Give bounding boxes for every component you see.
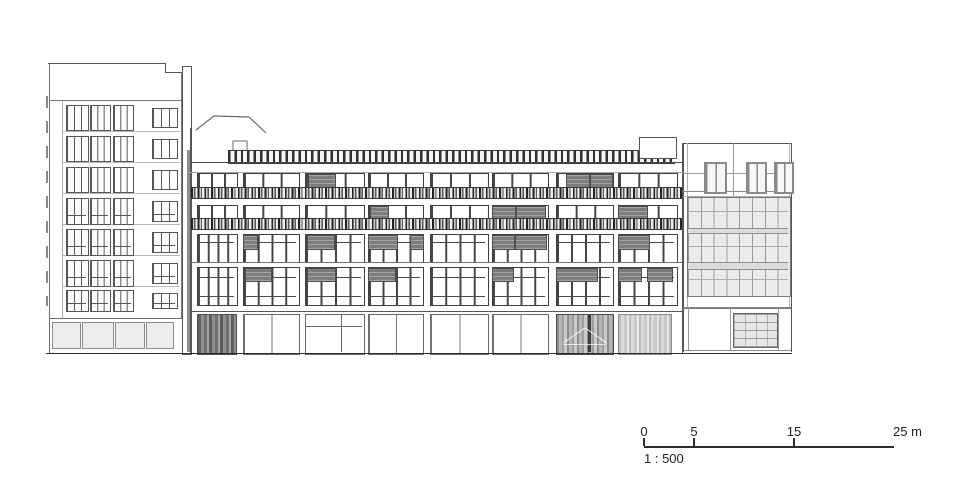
left-storefront-window <box>82 322 114 349</box>
left-window <box>113 198 134 225</box>
ground-storefront-glass <box>305 314 365 355</box>
center-window-transom <box>557 296 610 297</box>
center-dark-panel <box>618 268 642 282</box>
left-sill-line <box>62 131 180 132</box>
center-roof-line <box>190 162 683 163</box>
ground-shutter-light <box>618 314 672 355</box>
right-attic-window <box>774 162 794 194</box>
center-window-bay <box>430 234 489 263</box>
center-window-transom <box>619 296 674 297</box>
left-window <box>152 293 178 309</box>
left-window-transom <box>91 303 108 304</box>
curtain-spandrel-band <box>688 262 788 270</box>
left-window-transom <box>114 215 131 216</box>
center-window-transom <box>431 296 485 297</box>
center-dark-panel <box>307 235 335 250</box>
left-window <box>66 290 89 312</box>
ground-storefront-glass <box>430 314 489 355</box>
left-window <box>113 167 134 193</box>
center-window-transom <box>198 296 234 297</box>
left-window <box>90 105 111 131</box>
left-cornice-line <box>50 100 182 101</box>
center-window-bay <box>430 267 489 306</box>
left-window-transom <box>114 303 131 304</box>
left-window <box>90 136 111 162</box>
left-window <box>90 198 111 225</box>
roof-stair-box <box>639 137 677 159</box>
left-window <box>113 260 134 287</box>
left-window <box>113 290 134 312</box>
center-ground-floor-line <box>190 311 683 312</box>
left-window-transom <box>67 246 86 247</box>
left-window-transom <box>67 303 86 304</box>
left-storefront-window <box>52 322 81 349</box>
left-window-transom <box>91 246 108 247</box>
ground-storefront-glass <box>243 314 300 355</box>
center-dark-panel <box>647 268 673 282</box>
left-window-transom <box>153 303 175 304</box>
right-attic-window <box>746 162 767 194</box>
left-window <box>152 108 178 128</box>
left-sill-line <box>62 162 180 163</box>
center-window-bay <box>197 234 238 263</box>
curtain-spandrel-band <box>688 228 788 234</box>
left-storefront-line <box>50 318 182 319</box>
left-window-transom <box>153 276 175 277</box>
center-dark-panel <box>307 268 336 282</box>
right-sectional-door <box>733 313 778 348</box>
center-window-transom <box>431 277 485 278</box>
center-dark-panel <box>515 235 547 250</box>
left-window <box>66 229 89 256</box>
curtain-transom-line <box>688 246 788 247</box>
center-window-transom <box>244 296 296 297</box>
left-storefront-window <box>115 322 145 349</box>
left-window <box>152 263 178 284</box>
left-window <box>152 201 178 222</box>
left-window <box>66 136 89 162</box>
center-dark-panel <box>492 235 515 250</box>
center-window-transom <box>557 242 610 243</box>
center-dark-panel <box>410 235 424 250</box>
right-attic-window <box>704 162 727 194</box>
ground-storefront-glass <box>368 314 424 355</box>
left-window <box>66 167 89 193</box>
center-window-bay <box>197 267 238 306</box>
left-window-transom <box>114 246 131 247</box>
curtain-transom-line <box>688 211 788 212</box>
gate-base-line <box>563 344 605 345</box>
center-window-transom <box>306 296 361 297</box>
left-window <box>113 105 134 131</box>
left-roof-step <box>165 63 166 72</box>
center-window-bay <box>556 234 614 263</box>
left-window <box>66 105 89 131</box>
center-dark-panel <box>492 268 514 282</box>
center-dark-panel <box>556 268 598 282</box>
center-balcony-railing <box>191 187 682 200</box>
center-balcony-railing <box>191 218 682 230</box>
left-window-transom <box>153 245 175 246</box>
center-window-transom <box>198 277 234 278</box>
left-window <box>90 167 111 193</box>
right-ground-top-line <box>683 308 791 309</box>
left-window <box>90 260 111 287</box>
right-curtain-wall <box>687 197 791 297</box>
ground-shutter-dark <box>197 314 237 355</box>
storefront-transom-line <box>306 326 362 327</box>
ground-line <box>46 353 792 355</box>
center-window-transom <box>369 296 420 297</box>
left-wall-left <box>49 63 50 353</box>
left-sill-line <box>62 193 180 194</box>
center-window-transom <box>493 296 545 297</box>
left-window <box>66 260 89 287</box>
center-dark-panel <box>368 268 396 282</box>
left-window <box>152 139 178 159</box>
ground-entrance-gate <box>556 314 614 355</box>
right-base-line <box>683 350 791 351</box>
right-wall-left <box>683 143 684 352</box>
scale-ratio-label: 1 : 500 <box>644 451 684 466</box>
left-window-transom <box>91 277 108 278</box>
left-window-transom <box>153 214 175 215</box>
gate-swing-line <box>563 327 585 343</box>
curtain-transom-line <box>688 279 788 280</box>
scale-tick-label: 5 <box>690 424 697 439</box>
left-window-transom <box>91 215 108 216</box>
left-roof-line <box>48 63 165 64</box>
right-facade-divider <box>733 143 734 197</box>
left-window <box>90 229 111 256</box>
center-dark-panel <box>243 235 258 250</box>
left-window <box>113 229 134 256</box>
center-dark-panel <box>618 235 650 250</box>
left-storefront-window <box>146 322 174 349</box>
gate-mullion <box>588 315 591 352</box>
scale-baseline <box>644 446 894 448</box>
right-ground-post <box>688 308 689 350</box>
center-window-transom <box>431 242 485 243</box>
scale-tick-label: 25 m <box>893 424 922 439</box>
left-window <box>66 198 89 225</box>
left-window <box>152 232 178 253</box>
right-roof-line <box>683 143 791 144</box>
center-floor-line <box>190 262 683 263</box>
storefront-mullion <box>341 315 342 352</box>
left-window <box>152 170 178 190</box>
scale-tick-label: 15 <box>787 424 801 439</box>
center-dark-panel <box>368 235 398 250</box>
right-ground-post <box>730 308 731 350</box>
left-property-dashed-line <box>46 96 48 306</box>
center-window-transom <box>198 242 234 243</box>
left-window <box>90 290 111 312</box>
ground-storefront-glass <box>492 314 549 355</box>
scale-tick-label: 0 <box>640 424 647 439</box>
center-dark-panel <box>245 268 272 282</box>
left-window <box>113 136 134 162</box>
left-window-transom <box>114 277 131 278</box>
elevation-drawing: 1 : 500 051525 m <box>0 0 960 503</box>
left-window-transom <box>67 277 86 278</box>
left-window-transom <box>67 215 86 216</box>
